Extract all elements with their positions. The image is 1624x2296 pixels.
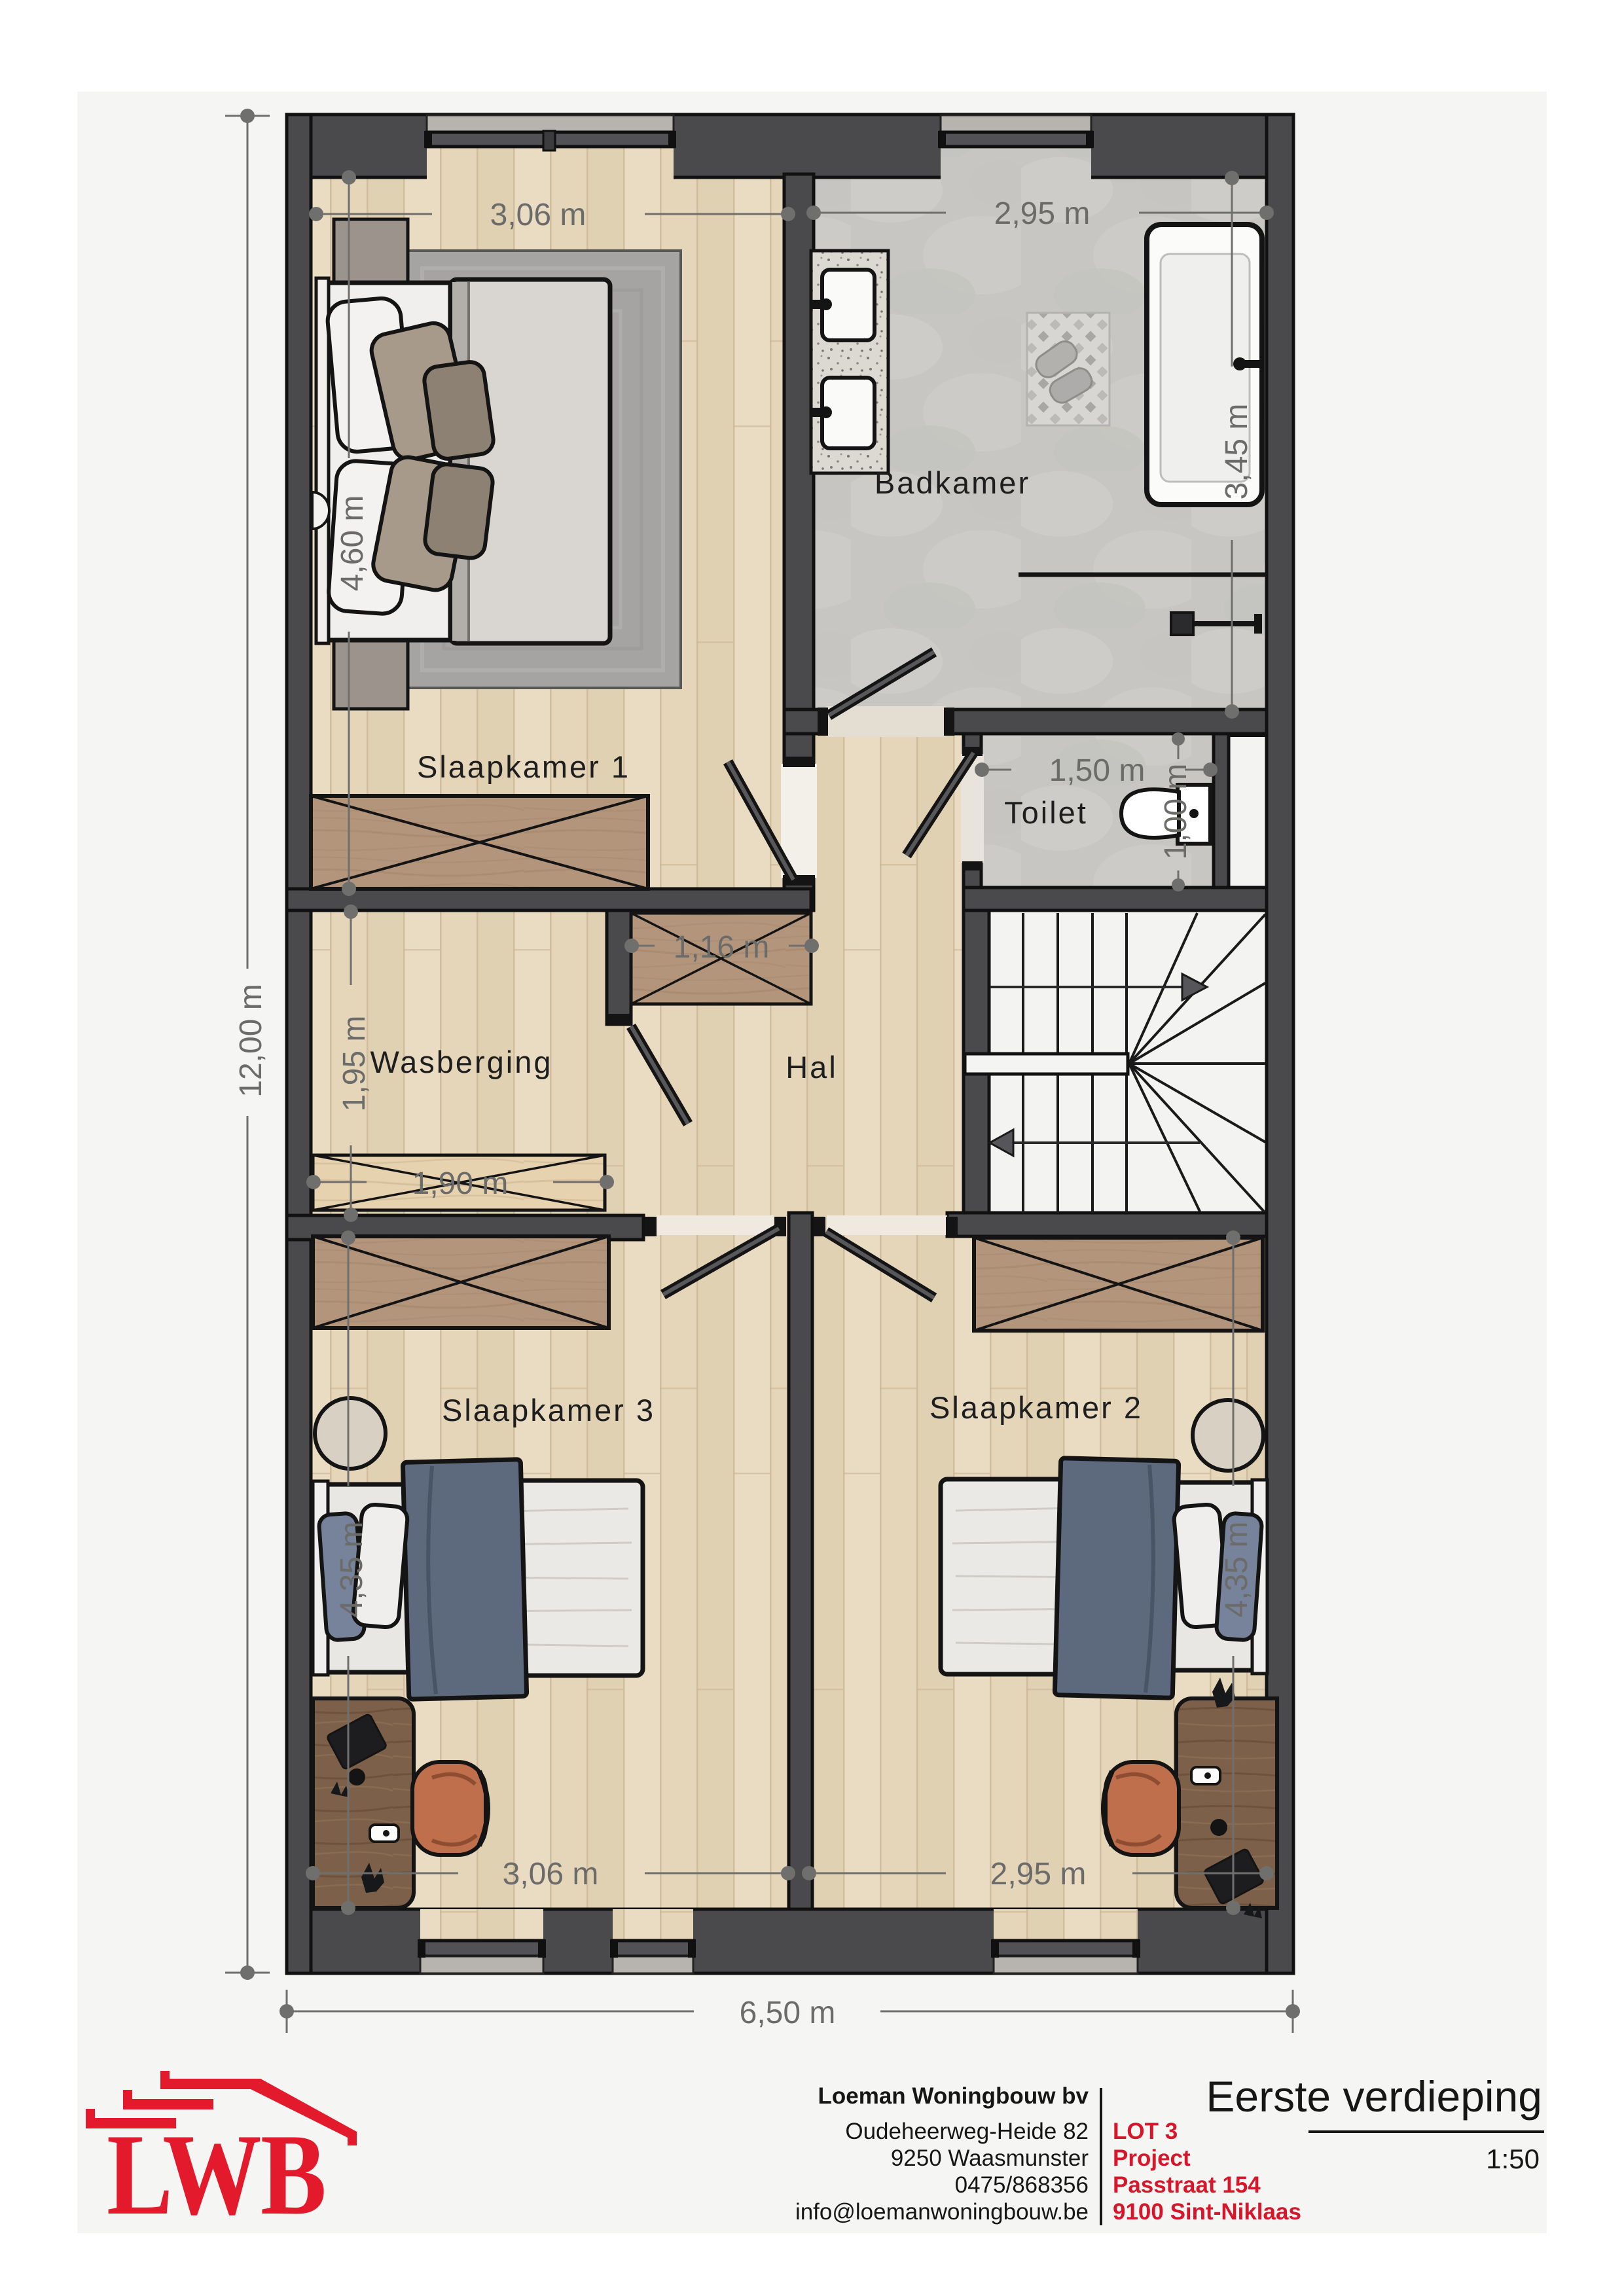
svg-text:1,95 m: 1,95 m <box>337 1016 372 1112</box>
svg-text:Toilet: Toilet <box>1004 795 1088 830</box>
svg-text:Slaapkamer 3: Slaapkamer 3 <box>442 1393 655 1427</box>
svg-text:3,06 m: 3,06 m <box>490 198 586 232</box>
svg-text:0475/868356: 0475/868356 <box>955 2172 1089 2198</box>
svg-text:3,45 m: 3,45 m <box>1219 404 1254 500</box>
svg-text:4,35 m: 4,35 m <box>334 1522 369 1618</box>
svg-text:2,95 m: 2,95 m <box>990 1857 1087 1892</box>
svg-text:Hal: Hal <box>785 1050 838 1085</box>
svg-text:1,16 m: 1,16 m <box>674 930 770 965</box>
svg-text:Eerste verdieping: Eerste verdieping <box>1206 2072 1542 2121</box>
svg-text:Slaapkamer 2: Slaapkamer 2 <box>929 1390 1143 1425</box>
svg-text:2,95 m: 2,95 m <box>994 196 1091 231</box>
svg-text:Badkamer: Badkamer <box>875 465 1030 500</box>
svg-text:9250 Waasmunster: 9250 Waasmunster <box>891 2145 1089 2171</box>
svg-text:Loeman Woningbouw bv: Loeman Woningbouw bv <box>818 2083 1089 2109</box>
svg-text:Slaapkamer 1: Slaapkamer 1 <box>417 749 630 784</box>
svg-text:4,35 m: 4,35 m <box>1219 1522 1254 1618</box>
svg-text:12,00 m: 12,00 m <box>234 984 268 1097</box>
svg-text:1,90 m: 1,90 m <box>412 1166 509 1201</box>
svg-text:Project: Project <box>1113 2145 1191 2171</box>
svg-text:1,50 m: 1,50 m <box>1049 753 1146 788</box>
svg-text:Oudeheerweg-Heide 82: Oudeheerweg-Heide 82 <box>845 2119 1089 2144</box>
svg-text:Wasberging: Wasberging <box>370 1045 552 1079</box>
svg-text:info@loemanwoningbouw.be: info@loemanwoningbouw.be <box>795 2199 1089 2225</box>
svg-text:LOT 3: LOT 3 <box>1113 2119 1178 2144</box>
svg-text:6,50 m: 6,50 m <box>740 1996 836 2030</box>
svg-text:9100 Sint-Niklaas: 9100 Sint-Niklaas <box>1113 2199 1301 2225</box>
svg-text:Passtraat 154: Passtraat 154 <box>1113 2172 1261 2198</box>
svg-text:LWB: LWB <box>107 2110 325 2239</box>
svg-text:1:50: 1:50 <box>1486 2144 1540 2174</box>
svg-text:4,60 m: 4,60 m <box>335 495 370 592</box>
svg-text:1,00 m: 1,00 m <box>1159 764 1193 860</box>
svg-text:3,06 m: 3,06 m <box>503 1857 599 1892</box>
